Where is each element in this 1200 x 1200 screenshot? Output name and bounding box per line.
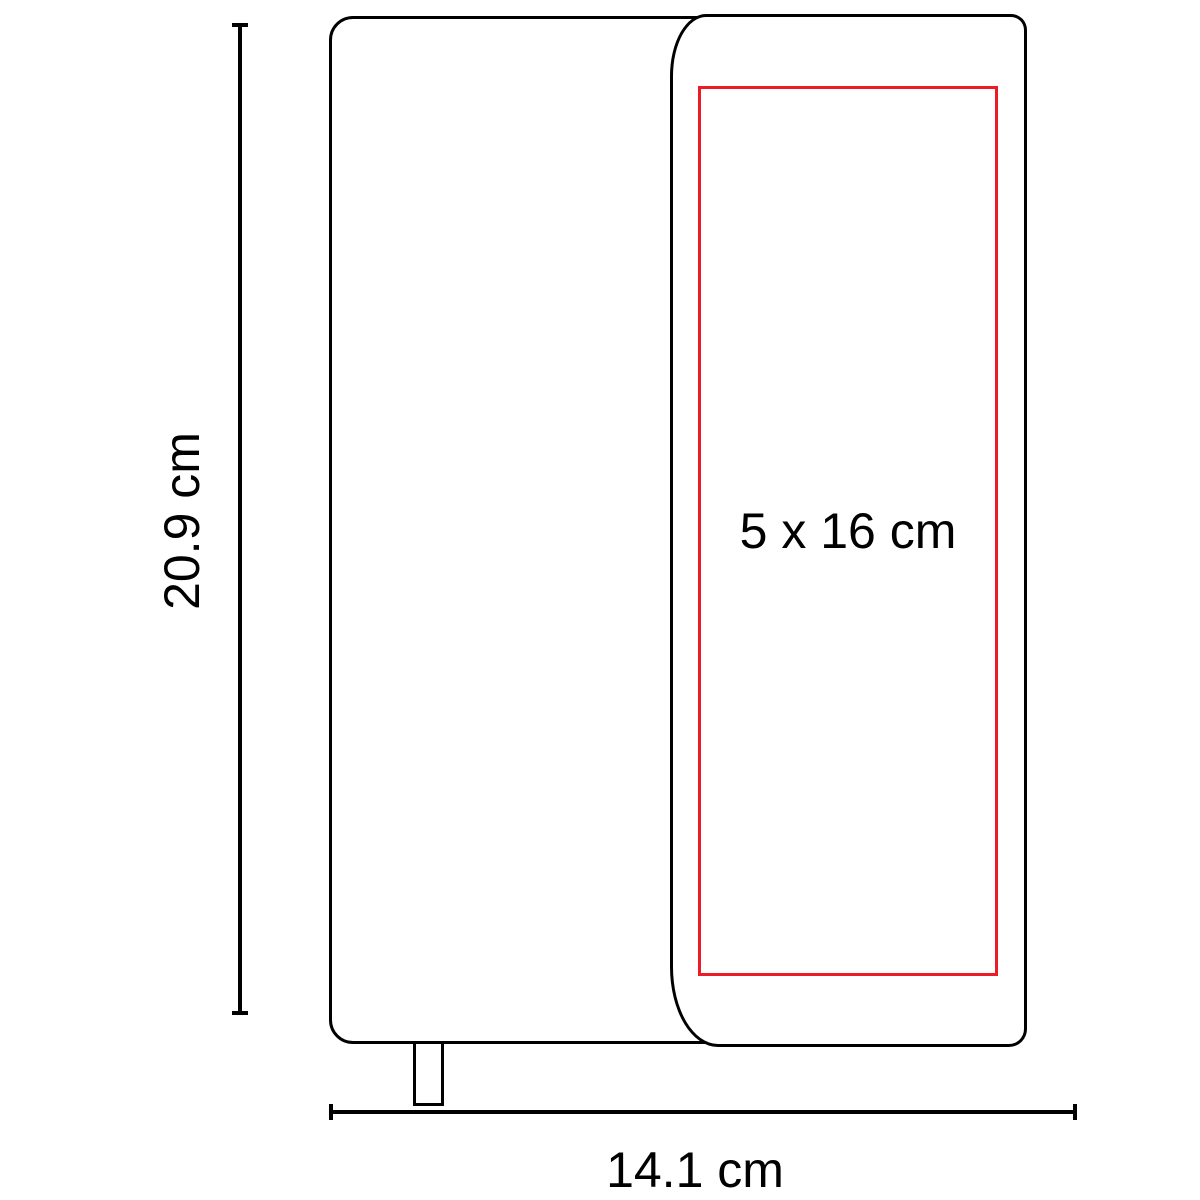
width-dimension-line: [331, 1110, 1075, 1114]
print-area-label: 5 x 16 cm: [740, 506, 957, 556]
print-area-box: 5 x 16 cm: [698, 86, 998, 976]
height-dimension-line: [238, 25, 242, 1013]
bookmark-tab-outline: [413, 1040, 444, 1106]
width-dimension-label: 14.1 cm: [606, 1145, 784, 1195]
width-dimension-cap-right: [1073, 1104, 1077, 1120]
height-dimension-label: 20.9 cm: [157, 432, 207, 610]
height-dimension-cap-bottom: [232, 1011, 248, 1015]
height-dimension-cap-top: [232, 23, 248, 27]
diagram-canvas: 5 x 16 cm 20.9 cm 14.1 cm: [0, 0, 1200, 1200]
width-dimension-cap-left: [329, 1104, 333, 1120]
